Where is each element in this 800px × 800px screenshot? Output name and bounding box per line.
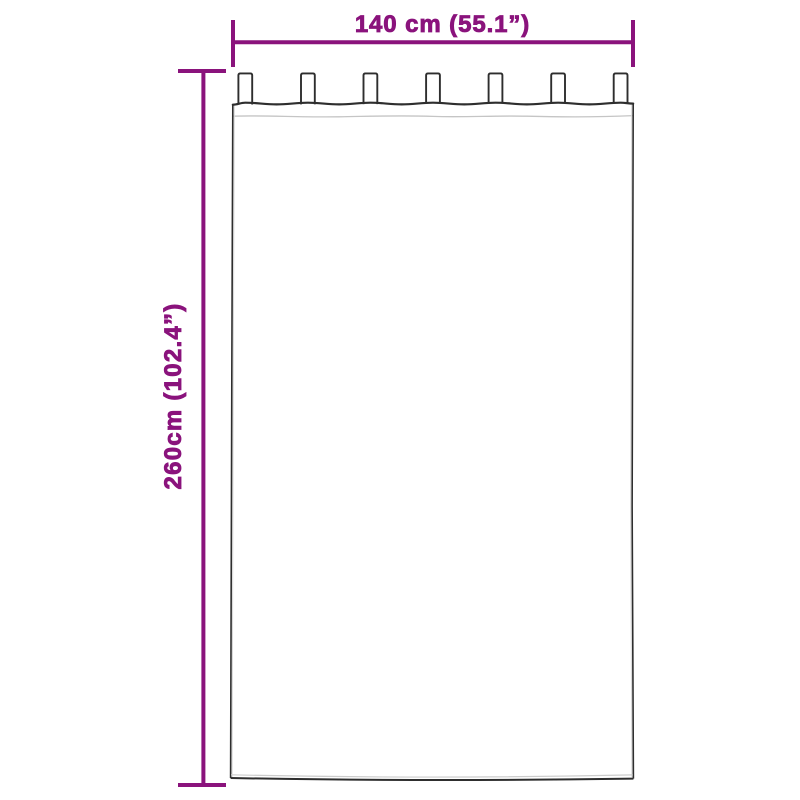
- svg-text:260cm (102.4”): 260cm (102.4”): [160, 303, 187, 490]
- svg-text:140 cm (55.1”): 140 cm (55.1”): [355, 11, 530, 38]
